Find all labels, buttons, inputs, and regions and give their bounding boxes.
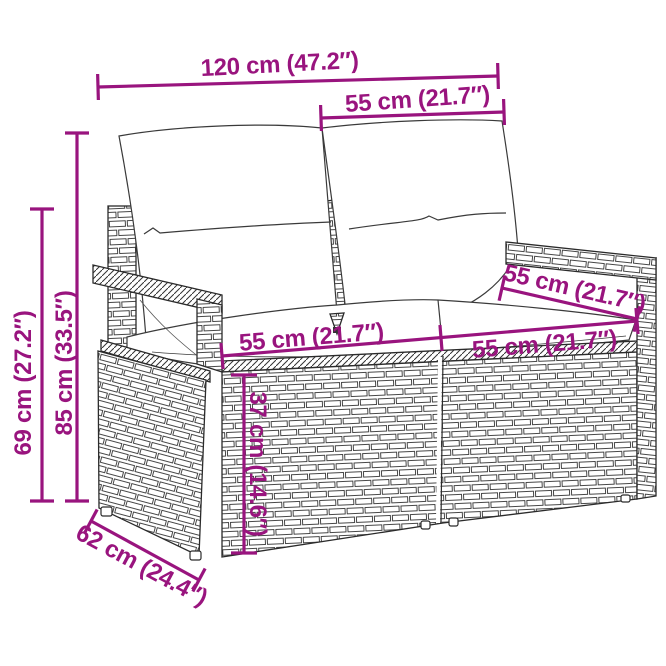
label-armrest-height: 69 cm (27.2″)	[10, 310, 37, 455]
back-cushion-left	[119, 125, 337, 338]
foot	[101, 507, 112, 516]
product-dimension-diagram: 120 cm (47.2″) 55 cm (21.7″) 85 cm (33.5…	[0, 0, 666, 666]
dimension-cap	[504, 99, 505, 125]
dimension-cap	[321, 105, 322, 131]
foot	[621, 495, 630, 502]
label-total-height: 85 cm (33.5″)	[51, 290, 78, 435]
dimension-cap	[98, 74, 99, 100]
foot	[449, 518, 458, 526]
foot	[421, 521, 430, 529]
module-seam-gap	[438, 357, 440, 523]
dimension-cap	[221, 343, 223, 369]
left-armrest-post	[197, 299, 222, 372]
label-seat-height: 37 cm (14.6″)	[244, 391, 271, 536]
dimension-tick	[440, 325, 442, 351]
foot	[190, 551, 201, 560]
dimension-cap	[498, 63, 499, 89]
